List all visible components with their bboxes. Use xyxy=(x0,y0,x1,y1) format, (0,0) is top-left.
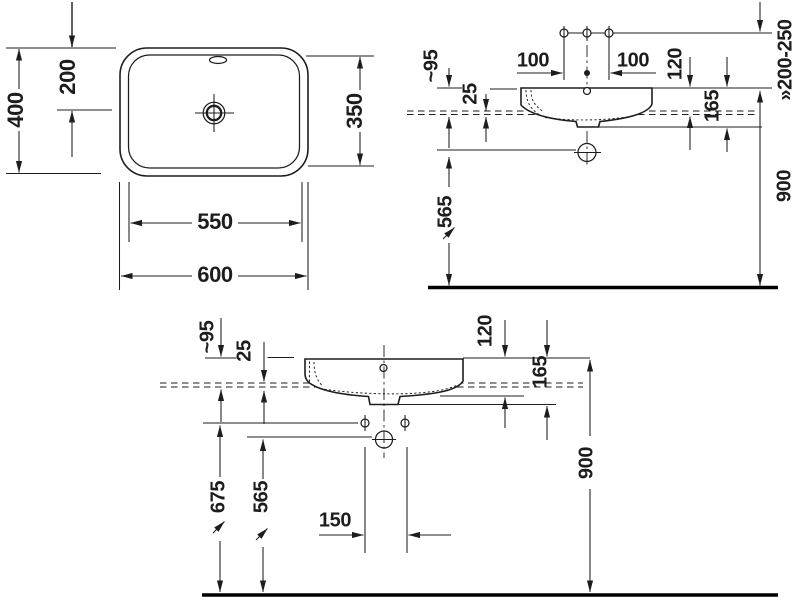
plan-view: 400 200 350 550 600 xyxy=(3,2,374,290)
dim-label-565: 565 xyxy=(250,481,272,513)
dim-label-mixer-range: »200-250 xyxy=(774,19,796,101)
dim-label-400: 400 xyxy=(3,92,28,128)
fixing-hole-symbol xyxy=(401,415,409,431)
dim-label-100-left: 100 xyxy=(517,49,549,71)
dim-label-120: 120 xyxy=(474,315,496,347)
dim-label-165: 165 xyxy=(701,90,723,122)
front-view-wall-fitting: 100 100 ~95 25 120 165 565 900 »200-250 xyxy=(407,2,796,288)
technical-drawing-page: 400 200 350 550 600 xyxy=(0,0,800,600)
dim-label-95: ~95 xyxy=(196,320,218,353)
dim-label-165: 165 xyxy=(529,356,551,388)
dim-label-150: 150 xyxy=(319,509,351,531)
dim-label-675: 675 xyxy=(207,481,229,513)
dim-label-350: 350 xyxy=(342,93,367,129)
dim-label-550: 550 xyxy=(197,209,233,234)
drain-symbol xyxy=(195,94,234,132)
dim-label-25: 25 xyxy=(459,83,481,105)
deck-tap-hole xyxy=(380,365,387,372)
dim-label-100-right: 100 xyxy=(617,49,649,71)
wall-view-dimension-lines xyxy=(437,2,760,286)
washbasin-dimension-drawing: 400 200 350 550 600 xyxy=(0,0,800,600)
drain-symbol xyxy=(574,144,601,162)
overflow-hole-icon xyxy=(210,57,227,64)
dim-label-900: 900 xyxy=(773,170,795,202)
dim-label-565: 565 xyxy=(434,196,456,228)
dim-label-25: 25 xyxy=(233,340,255,362)
dim-label-900: 900 xyxy=(575,447,597,479)
plan-dimension-lines xyxy=(6,2,374,290)
dim-label-200: 200 xyxy=(55,59,80,95)
front-view-floor: ~95 25 120 165 675 565 150 900 xyxy=(160,315,778,595)
center-reference-dot xyxy=(584,70,590,76)
dim-label-600: 600 xyxy=(197,262,233,287)
dim-label-120: 120 xyxy=(664,48,686,80)
fixing-hole-symbol xyxy=(361,415,369,431)
deck-tap-hole xyxy=(584,88,591,95)
dim-label-95: ~95 xyxy=(420,49,442,82)
